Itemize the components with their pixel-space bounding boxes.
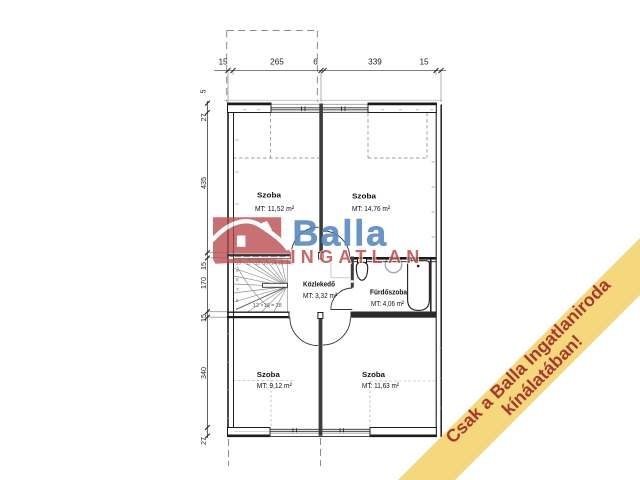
svg-text:170: 170 — [199, 277, 208, 289]
svg-text:INGATLAN: INGATLAN — [291, 247, 425, 267]
svg-text:27: 27 — [199, 437, 208, 445]
svg-text:340: 340 — [199, 367, 208, 379]
svg-text:Közlekedő: Közlekedő — [303, 280, 335, 289]
svg-text:MT: 11,63 m²: MT: 11,63 m² — [362, 381, 399, 390]
svg-text:435: 435 — [199, 177, 208, 189]
svg-text:12 ×19 = 28: 12 ×19 = 28 — [253, 303, 282, 309]
svg-text:Szoba: Szoba — [257, 370, 281, 379]
svg-text:15: 15 — [419, 58, 429, 67]
svg-text:5: 5 — [199, 90, 208, 94]
svg-text:Szoba: Szoba — [257, 191, 282, 200]
svg-text:6: 6 — [313, 58, 318, 67]
svg-text:MT: 11,52 m²: MT: 11,52 m² — [255, 204, 294, 213]
svg-text:15: 15 — [199, 314, 208, 322]
svg-text:MT: 4,06 m²: MT: 4,06 m² — [371, 299, 404, 308]
svg-text:MT: 9,12 m²: MT: 9,12 m² — [257, 381, 292, 390]
svg-text:265: 265 — [270, 58, 284, 67]
svg-text:Fürdőszoba: Fürdőszoba — [370, 288, 408, 297]
svg-text:15: 15 — [218, 58, 228, 67]
svg-text:Szoba: Szoba — [352, 192, 377, 201]
svg-text:MT: 3,32 m²: MT: 3,32 m² — [303, 291, 337, 300]
svg-text:Szoba: Szoba — [362, 370, 386, 379]
svg-text:339: 339 — [368, 58, 382, 67]
svg-text:15: 15 — [199, 262, 208, 270]
svg-text:27: 27 — [199, 113, 208, 121]
